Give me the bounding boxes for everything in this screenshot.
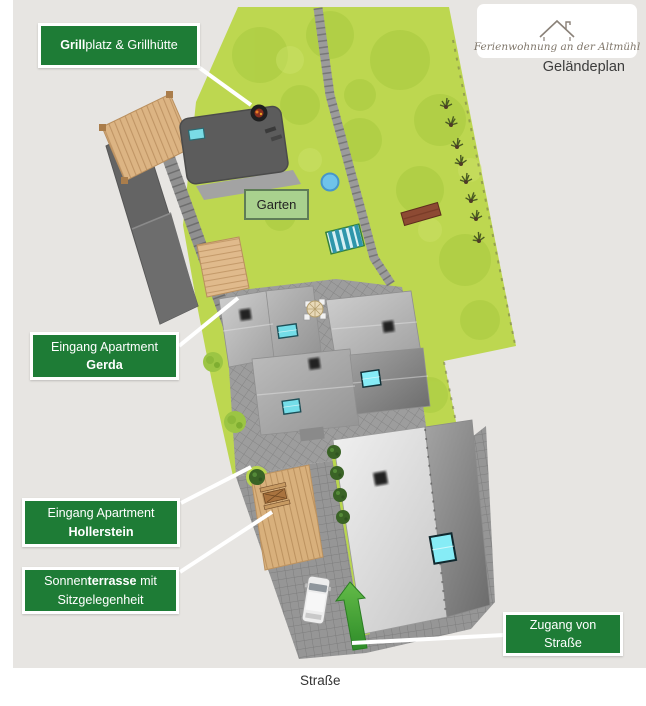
skylight-large	[430, 533, 456, 563]
sonnenterrasse-post: mit	[137, 574, 157, 588]
chimney	[239, 308, 251, 320]
gerda-line1: Eingang Apartment	[51, 338, 158, 356]
tree	[224, 411, 246, 433]
site-plan-page: Grillplatz & Grillhütte Eingang Apartmen…	[0, 0, 646, 706]
grillplatz-rest: platz & Grillhütte	[85, 38, 177, 52]
grill-hut-skylight	[189, 128, 205, 140]
callout-grillplatz-text: Grillplatz & Grillhütte	[60, 36, 178, 54]
roof-middle-top	[266, 286, 321, 358]
plan-title: Geländeplan	[543, 59, 625, 75]
logo-text: Ferienwohnung an der Altmühl	[474, 41, 640, 53]
callout-apartment-hollerstein: Eingang Apartment Hollerstein	[22, 498, 180, 547]
gerda-line2: Gerda	[86, 358, 122, 372]
chimney	[308, 357, 320, 369]
round-table-with-chairs	[304, 299, 326, 320]
callout-grillplatz: Grillplatz & Grillhütte	[38, 23, 200, 68]
house-icon	[512, 15, 602, 41]
tree	[203, 352, 223, 372]
garden-label-text: Garten	[257, 197, 297, 212]
hollerstein-line1: Eingang Apartment	[47, 504, 154, 522]
sonnenterrasse-line2: Sitzgelegenheit	[57, 591, 143, 609]
street-label: Straße	[300, 673, 341, 688]
zugang-line2: Straße	[544, 634, 582, 652]
garden-label: Garten	[244, 189, 309, 220]
skylight	[277, 324, 297, 339]
skylight	[282, 399, 301, 414]
sonnenterrasse-bold: terrasse	[88, 574, 137, 588]
sonnenterrasse-pre: Sonnen	[44, 574, 87, 588]
grillplatz-bold: Grill	[60, 38, 85, 52]
callout-zugang: Zugang von Straße	[503, 612, 623, 656]
callout-apartment-gerda: Eingang Apartment Gerda	[30, 332, 179, 380]
zugang-line1: Zugang von	[530, 616, 597, 634]
roof-center-lower	[252, 349, 359, 435]
callout-sonnenterrasse: Sonnenterrasse mit Sitzgelegenheit	[22, 567, 179, 614]
sonnenterrasse-line1: Sonnenterrasse mit	[44, 572, 157, 590]
chimney	[382, 320, 394, 332]
wooden-deck-small	[197, 237, 249, 297]
skylight	[361, 370, 381, 387]
logo-card: Ferienwohnung an der Altmühl	[477, 4, 637, 58]
pool	[322, 174, 339, 191]
chimney	[373, 471, 388, 486]
hollerstein-line2: Hollerstein	[68, 525, 133, 539]
